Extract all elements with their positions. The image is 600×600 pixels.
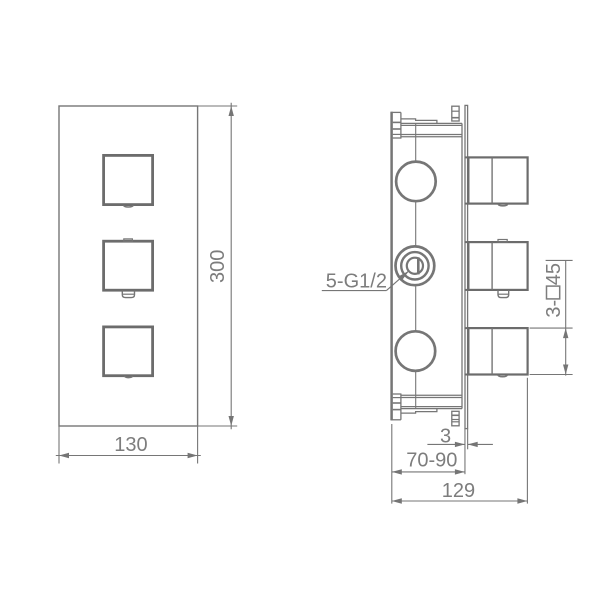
- svg-text:130: 130: [114, 434, 147, 456]
- svg-text:5-G1/2: 5-G1/2: [326, 270, 387, 292]
- svg-text:3-: 3-: [543, 300, 565, 318]
- svg-text:129: 129: [442, 480, 475, 502]
- svg-text:3: 3: [440, 426, 451, 448]
- svg-text:45: 45: [543, 263, 565, 285]
- svg-text:70-90: 70-90: [406, 450, 457, 472]
- svg-text:300: 300: [207, 250, 229, 283]
